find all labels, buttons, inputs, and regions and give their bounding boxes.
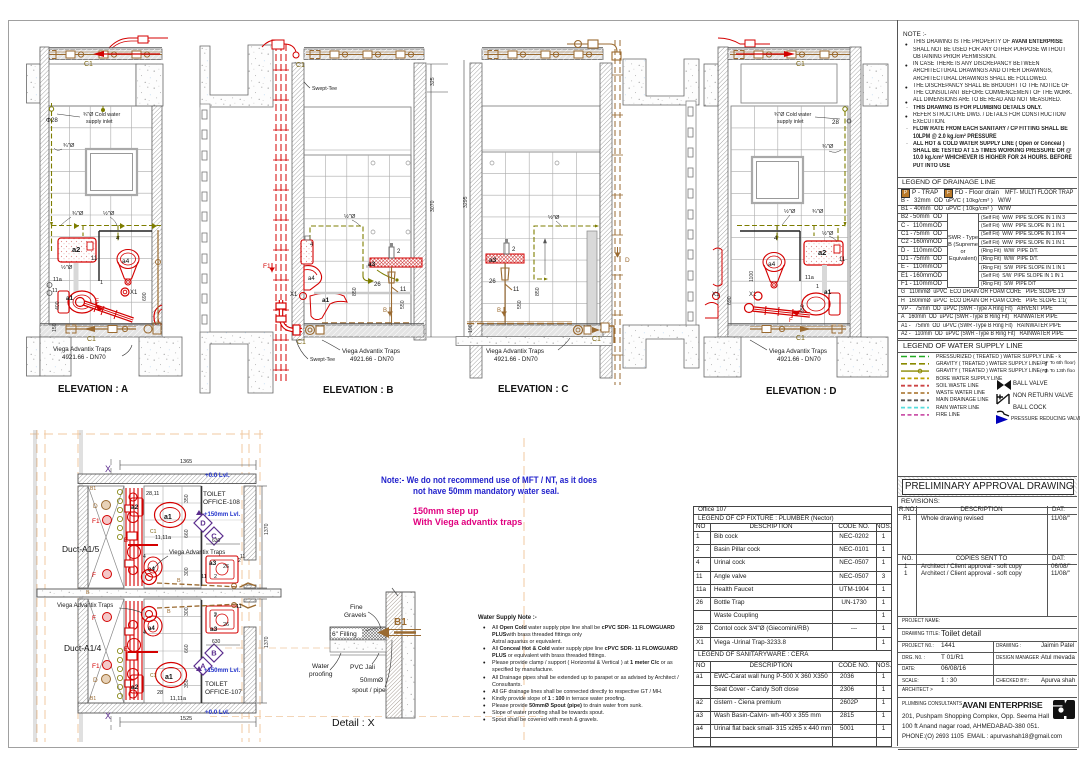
svg-text:C1: C1 bbox=[150, 529, 157, 535]
svg-text:a1: a1 bbox=[164, 514, 172, 521]
svg-text:¾"Ø: ¾"Ø bbox=[822, 144, 834, 150]
svg-text:Viega Advantix Traps: Viega Advantix Traps bbox=[53, 346, 111, 353]
svg-text:ELEVATION : B: ELEVATION : B bbox=[323, 385, 393, 396]
svg-text:C1: C1 bbox=[87, 336, 96, 343]
svg-text:a2: a2 bbox=[72, 245, 80, 254]
svg-text:4921.66 - DN70: 4921.66 - DN70 bbox=[62, 354, 106, 361]
svg-text:300: 300 bbox=[184, 607, 190, 616]
svg-text:2: 2 bbox=[214, 574, 217, 580]
svg-text:4921.66 - DN70: 4921.66 - DN70 bbox=[494, 356, 538, 363]
svg-text:a1: a1 bbox=[322, 297, 330, 304]
svg-text:28: 28 bbox=[832, 119, 839, 126]
svg-text:Viega Advantix Traps: Viega Advantix Traps bbox=[57, 603, 113, 609]
svg-text:400: 400 bbox=[55, 301, 61, 310]
svg-text:630: 630 bbox=[212, 538, 221, 544]
svg-text:a3: a3 bbox=[368, 261, 376, 268]
svg-text:1370: 1370 bbox=[264, 523, 270, 535]
svg-text:OFFICE-107: OFFICE-107 bbox=[205, 689, 242, 696]
svg-text:F1: F1 bbox=[92, 663, 100, 670]
svg-text:E: E bbox=[124, 647, 128, 653]
svg-text:11: 11 bbox=[201, 574, 207, 580]
svg-text:11: 11 bbox=[91, 256, 98, 262]
svg-text:B: B bbox=[167, 609, 171, 615]
svg-text:a1: a1 bbox=[66, 295, 74, 302]
svg-text:¾"Ø: ¾"Ø bbox=[812, 209, 824, 215]
svg-text:¾"Ø Cold water: ¾"Ø Cold water bbox=[83, 112, 120, 118]
svg-text:Duct-A1/5: Duct-A1/5 bbox=[62, 544, 100, 554]
svg-text:F1: F1 bbox=[92, 518, 100, 525]
svg-text:Detail : X: Detail : X bbox=[332, 717, 375, 729]
svg-text:B1: B1 bbox=[90, 696, 96, 702]
svg-text:½"Ø: ½"Ø bbox=[548, 214, 560, 221]
svg-text:B: B bbox=[211, 649, 217, 658]
svg-text:660: 660 bbox=[184, 529, 190, 538]
svg-text:a3: a3 bbox=[209, 560, 217, 567]
svg-text:X: X bbox=[105, 711, 111, 721]
svg-text:a4: a4 bbox=[148, 626, 155, 632]
svg-text:11: 11 bbox=[839, 257, 846, 263]
svg-text:4921.66 - DN70: 4921.66 - DN70 bbox=[350, 356, 394, 363]
svg-text:Fine: Fine bbox=[350, 604, 363, 611]
svg-text:Water: Water bbox=[312, 663, 330, 670]
svg-text:2: 2 bbox=[512, 247, 516, 253]
svg-text:11,11a: 11,11a bbox=[170, 696, 187, 702]
svg-text:X1: X1 bbox=[130, 290, 138, 296]
svg-text:D: D bbox=[93, 677, 98, 684]
svg-text:a2: a2 bbox=[131, 684, 139, 691]
svg-text:F1: F1 bbox=[263, 263, 271, 270]
svg-text:850: 850 bbox=[352, 287, 358, 296]
svg-text:B1: B1 bbox=[394, 617, 407, 628]
svg-text:11: 11 bbox=[513, 287, 520, 293]
svg-text:a1: a1 bbox=[824, 289, 832, 296]
svg-text:½"Ø: ½"Ø bbox=[344, 213, 356, 220]
svg-text:C1: C1 bbox=[796, 61, 805, 68]
svg-text:11: 11 bbox=[236, 604, 242, 610]
svg-text:C1: C1 bbox=[297, 339, 306, 346]
svg-text:300: 300 bbox=[184, 567, 190, 576]
svg-text:6" Filling: 6" Filling bbox=[332, 631, 357, 638]
svg-text:D: D bbox=[93, 503, 98, 510]
svg-text:50mmØ: 50mmØ bbox=[360, 677, 383, 684]
svg-text:PVC Jali: PVC Jali bbox=[350, 664, 375, 671]
svg-text:TOILET: TOILET bbox=[205, 681, 228, 688]
svg-text:350: 350 bbox=[184, 494, 190, 503]
svg-text:½"Ø: ½"Ø bbox=[103, 210, 115, 217]
svg-text:C1: C1 bbox=[84, 61, 93, 68]
svg-text:Swept-Tee: Swept-Tee bbox=[310, 357, 335, 363]
svg-text:4921.66 - DN70: 4921.66 - DN70 bbox=[777, 356, 821, 363]
svg-text:4: 4 bbox=[143, 630, 146, 636]
svg-text:11a: 11a bbox=[53, 277, 63, 283]
svg-text:a4: a4 bbox=[308, 276, 315, 282]
svg-text:supply inlet: supply inlet bbox=[86, 119, 113, 125]
svg-text:550: 550 bbox=[517, 300, 523, 309]
svg-text:11: 11 bbox=[240, 554, 245, 560]
svg-text:Duct-A1/4: Duct-A1/4 bbox=[64, 643, 102, 653]
svg-text:a3: a3 bbox=[489, 257, 497, 264]
svg-text:1525: 1525 bbox=[180, 716, 192, 722]
svg-text:26: 26 bbox=[374, 282, 381, 288]
svg-text:2: 2 bbox=[214, 612, 217, 618]
svg-text:D: D bbox=[625, 257, 630, 264]
svg-text:¾"Ø: ¾"Ø bbox=[72, 211, 84, 217]
svg-text:½"Ø: ½"Ø bbox=[61, 264, 73, 271]
svg-text:+0.0 Lvl.: +0.0 Lvl. bbox=[205, 472, 230, 479]
svg-text:Swept-Tee: Swept-Tee bbox=[312, 86, 337, 92]
svg-text:B: B bbox=[177, 578, 181, 584]
svg-text:ELEVATION : A: ELEVATION : A bbox=[58, 384, 128, 395]
svg-text:350: 350 bbox=[184, 679, 190, 688]
svg-text:1: 1 bbox=[100, 280, 103, 286]
svg-text:28,11: 28,11 bbox=[146, 491, 159, 497]
svg-text:1100: 1100 bbox=[749, 271, 755, 282]
svg-text:X: X bbox=[105, 464, 111, 474]
svg-text:1370: 1370 bbox=[264, 636, 270, 648]
svg-text:X1: X1 bbox=[712, 292, 720, 298]
svg-text:550: 550 bbox=[400, 300, 406, 309]
svg-text:Gravels: Gravels bbox=[344, 612, 367, 619]
svg-text:a3: a3 bbox=[210, 626, 218, 633]
svg-text:B: B bbox=[383, 308, 387, 314]
svg-text:F: F bbox=[92, 572, 96, 579]
svg-text:650: 650 bbox=[800, 304, 806, 313]
svg-text:+150mm Lvl.: +150mm Lvl. bbox=[204, 668, 241, 674]
svg-text:TOILET: TOILET bbox=[203, 491, 226, 498]
svg-text:¾"Ø Cold water: ¾"Ø Cold water bbox=[774, 112, 811, 118]
svg-text:¾"Ø: ¾"Ø bbox=[63, 143, 75, 149]
svg-text:ELEVATION : C: ELEVATION : C bbox=[498, 384, 568, 395]
svg-text:C1: C1 bbox=[592, 336, 601, 343]
svg-text:11a: 11a bbox=[805, 275, 815, 281]
svg-text:11,11a: 11,11a bbox=[155, 535, 172, 541]
svg-text:supply inlet: supply inlet bbox=[777, 119, 804, 125]
svg-text:325: 325 bbox=[430, 77, 436, 86]
svg-text:4: 4 bbox=[310, 242, 313, 248]
svg-text:proofing: proofing bbox=[309, 671, 333, 678]
svg-text:E: E bbox=[95, 299, 99, 305]
svg-text:28: 28 bbox=[157, 690, 163, 696]
svg-text:Viega Advantix Traps: Viega Advantix Traps bbox=[769, 348, 827, 355]
svg-text:690: 690 bbox=[727, 296, 733, 305]
svg-text:26: 26 bbox=[223, 622, 229, 628]
svg-text:26: 26 bbox=[489, 279, 496, 285]
svg-text:660: 660 bbox=[184, 644, 190, 653]
svg-text:E: E bbox=[124, 538, 128, 544]
svg-text:B: B bbox=[86, 590, 90, 596]
svg-text:11: 11 bbox=[400, 287, 407, 293]
svg-text:1: 1 bbox=[816, 284, 819, 290]
svg-text:850: 850 bbox=[535, 287, 541, 296]
svg-text:a4: a4 bbox=[122, 258, 130, 265]
svg-text:a1: a1 bbox=[165, 674, 173, 681]
svg-text:a2: a2 bbox=[131, 504, 139, 511]
svg-text:a2: a2 bbox=[818, 248, 826, 257]
svg-text:B1: B1 bbox=[90, 486, 96, 492]
svg-text:1365: 1365 bbox=[180, 459, 192, 465]
svg-text:150: 150 bbox=[52, 323, 58, 332]
svg-text:ELEVATION : D: ELEVATION : D bbox=[766, 386, 836, 397]
svg-text:2: 2 bbox=[397, 249, 401, 255]
svg-text:D: D bbox=[200, 519, 206, 528]
svg-text:F: F bbox=[92, 615, 96, 622]
svg-text:26: 26 bbox=[223, 564, 229, 570]
svg-text:630: 630 bbox=[212, 639, 221, 645]
svg-text:C1: C1 bbox=[296, 62, 305, 69]
svg-text:11: 11 bbox=[52, 288, 58, 294]
svg-text:X1: X1 bbox=[290, 292, 298, 298]
svg-text:a4: a4 bbox=[768, 261, 776, 268]
svg-text:C1: C1 bbox=[150, 673, 157, 679]
svg-text:+0.0 Lvl.: +0.0 Lvl. bbox=[205, 709, 230, 716]
svg-text:Viega Advantix Traps: Viega Advantix Traps bbox=[342, 348, 400, 355]
svg-text:690: 690 bbox=[142, 292, 148, 301]
svg-text:½"Ø: ½"Ø bbox=[822, 230, 834, 237]
svg-text:Viega Advantix Traps: Viega Advantix Traps bbox=[169, 550, 225, 556]
svg-text:Viega Advantix Traps: Viega Advantix Traps bbox=[486, 348, 544, 355]
svg-text:4: 4 bbox=[143, 554, 146, 560]
svg-text:3070: 3070 bbox=[430, 200, 436, 212]
svg-text:½"Ø: ½"Ø bbox=[784, 208, 796, 215]
svg-text:B: B bbox=[497, 308, 501, 314]
svg-text:C1: C1 bbox=[796, 335, 805, 342]
svg-text:OFFICE-108: OFFICE-108 bbox=[203, 499, 240, 506]
svg-text:3295: 3295 bbox=[463, 196, 469, 208]
svg-text:Φ28: Φ28 bbox=[46, 117, 58, 124]
svg-text:190: 190 bbox=[468, 324, 474, 333]
svg-text:+150mm Lvl.: +150mm Lvl. bbox=[204, 512, 241, 518]
svg-text:spout / pipe: spout / pipe bbox=[352, 687, 386, 694]
